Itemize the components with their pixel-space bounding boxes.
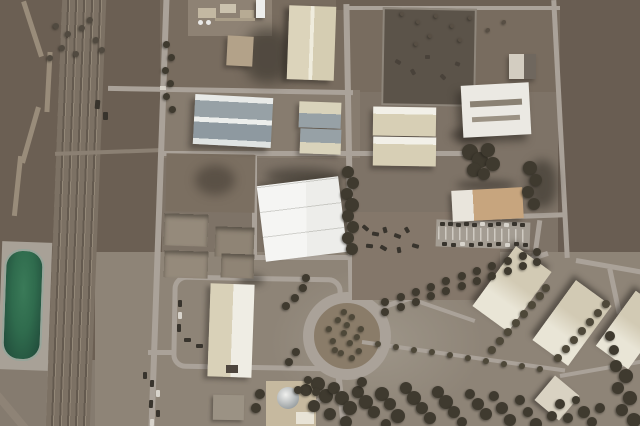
plant-tank (206, 20, 211, 25)
tan-building (451, 187, 524, 222)
loop-building-door (226, 365, 238, 373)
plaza-small-building (296, 412, 314, 424)
brown-lot-berm-shadow (195, 165, 235, 195)
twin-warehouse-north (373, 106, 436, 136)
white-complex (461, 82, 532, 137)
plant-pipe-rack (215, 18, 255, 21)
flat-block (221, 253, 255, 278)
guard-building (509, 54, 536, 79)
plant-structure (198, 8, 216, 18)
loop-building (207, 283, 254, 377)
two-tone-hangar-lower (300, 128, 342, 154)
gray-flat-building (213, 395, 244, 421)
loop-to-west-road (148, 350, 174, 355)
two-tone-hangar-upper (299, 101, 342, 128)
twin-warehouse-south (373, 136, 436, 166)
cream-hall-north (287, 5, 337, 81)
flat-block (163, 213, 208, 247)
white-hall (257, 176, 348, 261)
striped-hangar-large (193, 94, 274, 148)
tan-office-building (226, 35, 254, 66)
dark-tree-patch (527, 160, 557, 208)
tree-icon (481, 143, 495, 157)
flat-block (164, 250, 209, 279)
satellite-image (0, 0, 640, 426)
plant-tank (198, 20, 203, 25)
plant-structure (220, 4, 236, 13)
tree-icon (467, 163, 481, 177)
plant-structure (240, 10, 254, 18)
tree-icon (486, 157, 500, 171)
dome-structure (277, 387, 299, 409)
cooling-pond (3, 250, 43, 359)
gate-checkpoint (160, 86, 166, 90)
plant-tower (256, 0, 265, 18)
desert-right (558, 0, 640, 264)
tree-icon (478, 168, 490, 180)
